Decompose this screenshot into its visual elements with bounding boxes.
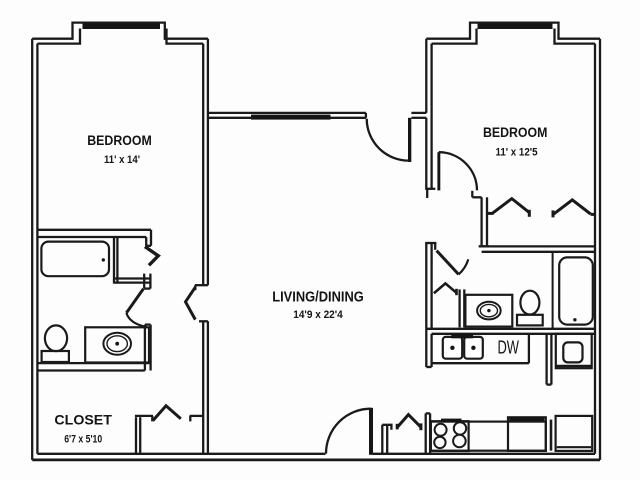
svg-text:CLOSET: CLOSET — [54, 413, 112, 428]
svg-text:DW: DW — [497, 338, 519, 358]
svg-text:11' x 14': 11' x 14' — [104, 154, 140, 166]
svg-text:BEDROOM: BEDROOM — [483, 125, 548, 141]
svg-text:BEDROOM: BEDROOM — [87, 133, 152, 149]
svg-text:11' x 12'5: 11' x 12'5 — [496, 147, 538, 159]
svg-text:LIVING/DINING: LIVING/DINING — [272, 289, 364, 306]
svg-text:6'7 x 5'10: 6'7 x 5'10 — [64, 434, 102, 446]
svg-text:14'9 x 22'4: 14'9 x 22'4 — [293, 309, 343, 321]
